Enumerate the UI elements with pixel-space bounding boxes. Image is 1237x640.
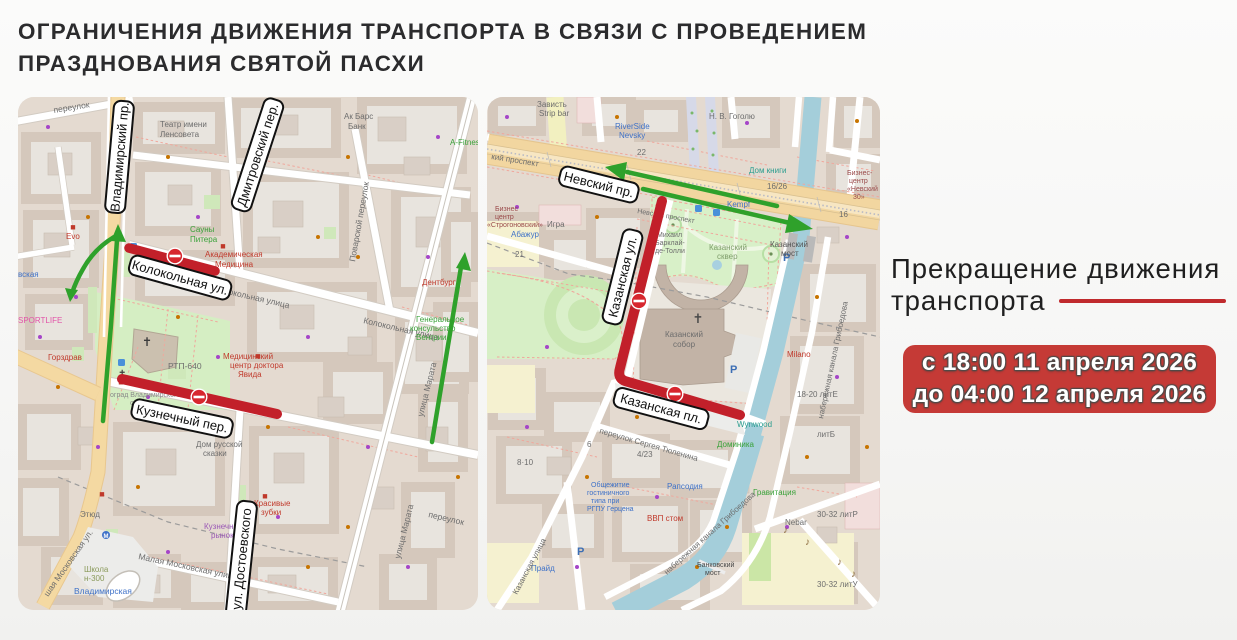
svg-text:Ак Барс: Ак Барс: [344, 112, 373, 121]
svg-text:■: ■: [99, 489, 104, 499]
svg-text:Михаил: Михаил: [657, 232, 682, 239]
svg-text:Рапсодия: Рапсодия: [667, 482, 703, 491]
svg-text:SPORTLIFE: SPORTLIFE: [18, 316, 62, 325]
svg-text:✝: ✝: [693, 311, 704, 326]
svg-text:Этюд: Этюд: [80, 510, 100, 519]
svg-text:RiverSide: RiverSide: [615, 122, 650, 131]
svg-text:♪: ♪: [805, 537, 810, 548]
svg-text:P: P: [577, 546, 584, 558]
svg-text:Медицина: Медицина: [215, 260, 254, 269]
svg-text:Бизнес: Бизнес: [495, 206, 518, 213]
svg-text:вская: вская: [18, 270, 39, 279]
svg-text:Дом книги: Дом книги: [749, 166, 786, 175]
svg-text:18-20 литЕ: 18-20 литЕ: [797, 390, 838, 399]
svg-text:собор: собор: [673, 340, 696, 349]
svg-text:Казанский: Казанский: [665, 330, 703, 339]
svg-text:✝: ✝: [142, 335, 152, 349]
svg-text:Театр имени: Театр имени: [160, 120, 207, 129]
svg-text:Гравитация: Гравитация: [753, 488, 796, 497]
svg-text:16/26: 16/26: [767, 182, 788, 191]
svg-text:Питера: Питера: [190, 235, 218, 244]
svg-text:Игра: Игра: [547, 220, 565, 229]
svg-text:Зависть: Зависть: [537, 100, 567, 109]
svg-text:литБ: литБ: [817, 430, 835, 439]
svg-text:Казанский: Казанский: [709, 243, 747, 252]
svg-text:Явида: Явида: [238, 370, 262, 379]
svg-text:Nevsky: Nevsky: [619, 131, 645, 140]
svg-text:Сауны: Сауны: [190, 225, 215, 234]
svg-text:Evo: Evo: [66, 232, 80, 241]
svg-text:Дентбург: Дентбург: [422, 278, 456, 287]
svg-text:Банковский: Банковский: [697, 561, 734, 569]
svg-text:типа при: типа при: [591, 498, 619, 505]
svg-text:мост: мост: [705, 570, 721, 577]
svg-text:Н. В. Гоголю: Н. В. Гоголю: [709, 112, 755, 121]
svg-text:P: P: [730, 364, 737, 376]
svg-text:рынок: рынок: [211, 531, 234, 540]
svg-text:30»: 30»: [853, 194, 865, 201]
svg-text:♪: ♪: [837, 557, 842, 568]
svg-text:РТП-640: РТП-640: [168, 361, 202, 371]
svg-text:н-300: н-300: [84, 574, 105, 583]
svg-text:центр: центр: [849, 178, 868, 185]
svg-text:30-32 литP: 30-32 литP: [817, 510, 858, 519]
svg-text:4/23: 4/23: [637, 450, 653, 459]
svg-text:Strip bar: Strip bar: [539, 109, 570, 118]
svg-text:мост: мост: [781, 249, 799, 258]
svg-text:Milano: Milano: [787, 350, 811, 359]
svg-text:30-32 литУ: 30-32 литУ: [817, 580, 858, 589]
svg-text:центр: центр: [495, 214, 514, 221]
svg-text:8·10: 8·10: [517, 458, 534, 467]
svg-text:Генеральное: Генеральное: [416, 315, 465, 324]
svg-text:Школа: Школа: [84, 565, 109, 574]
svg-text:«Строгоновский»: «Строгоновский»: [487, 221, 543, 229]
svg-text:Венгрии: Венгрии: [416, 333, 447, 342]
svg-text:гостиничного: гостиничного: [587, 490, 629, 497]
svg-text:РГПУ Герцена: РГПУ Герцена: [587, 506, 634, 513]
svg-text:A-Fitness: A-Fitness: [450, 138, 478, 147]
svg-text:Абажур: Абажур: [511, 230, 540, 239]
svg-text:Барклай-: Барклай-: [655, 239, 685, 247]
svg-text:сквер: сквер: [717, 252, 738, 261]
svg-text:сказки: сказки: [203, 449, 227, 458]
svg-text:■: ■: [70, 222, 75, 232]
svg-text:21: 21: [515, 250, 524, 259]
svg-text:Банк: Банк: [348, 122, 366, 131]
svg-text:M: M: [104, 534, 109, 540]
svg-text:центр доктора: центр доктора: [230, 361, 284, 370]
svg-text:Владимирская: Владимирская: [74, 586, 132, 596]
svg-text:Nebar: Nebar: [785, 518, 807, 527]
svg-text:Wynwood: Wynwood: [737, 420, 772, 429]
svg-text:Академическая: Академическая: [205, 250, 263, 259]
svg-text:6: 6: [587, 440, 592, 449]
svg-text:Казанский: Казанский: [770, 240, 808, 249]
svg-text:Бизнес-: Бизнес-: [847, 170, 873, 177]
svg-text:де-Толли: де-Толли: [655, 248, 685, 255]
svg-text:Медицинский: Медицинский: [223, 352, 273, 361]
svg-text:Дом русской: Дом русской: [196, 440, 242, 449]
svg-text:Горздрав: Горздрав: [48, 353, 82, 362]
svg-text:зубки: зубки: [261, 508, 281, 517]
svg-text:16: 16: [839, 210, 848, 219]
svg-text:ВВП стом: ВВП стом: [647, 514, 683, 523]
svg-text:22: 22: [637, 148, 646, 157]
svg-text:Доминика: Доминика: [717, 440, 754, 449]
svg-text:Общежитие: Общежитие: [591, 481, 630, 489]
svg-text:Ленсовета: Ленсовета: [160, 130, 200, 139]
svg-text:Красивые: Красивые: [254, 499, 291, 508]
svg-text:♪: ♪: [851, 569, 856, 580]
svg-text:«Невский: «Невский: [847, 185, 878, 193]
